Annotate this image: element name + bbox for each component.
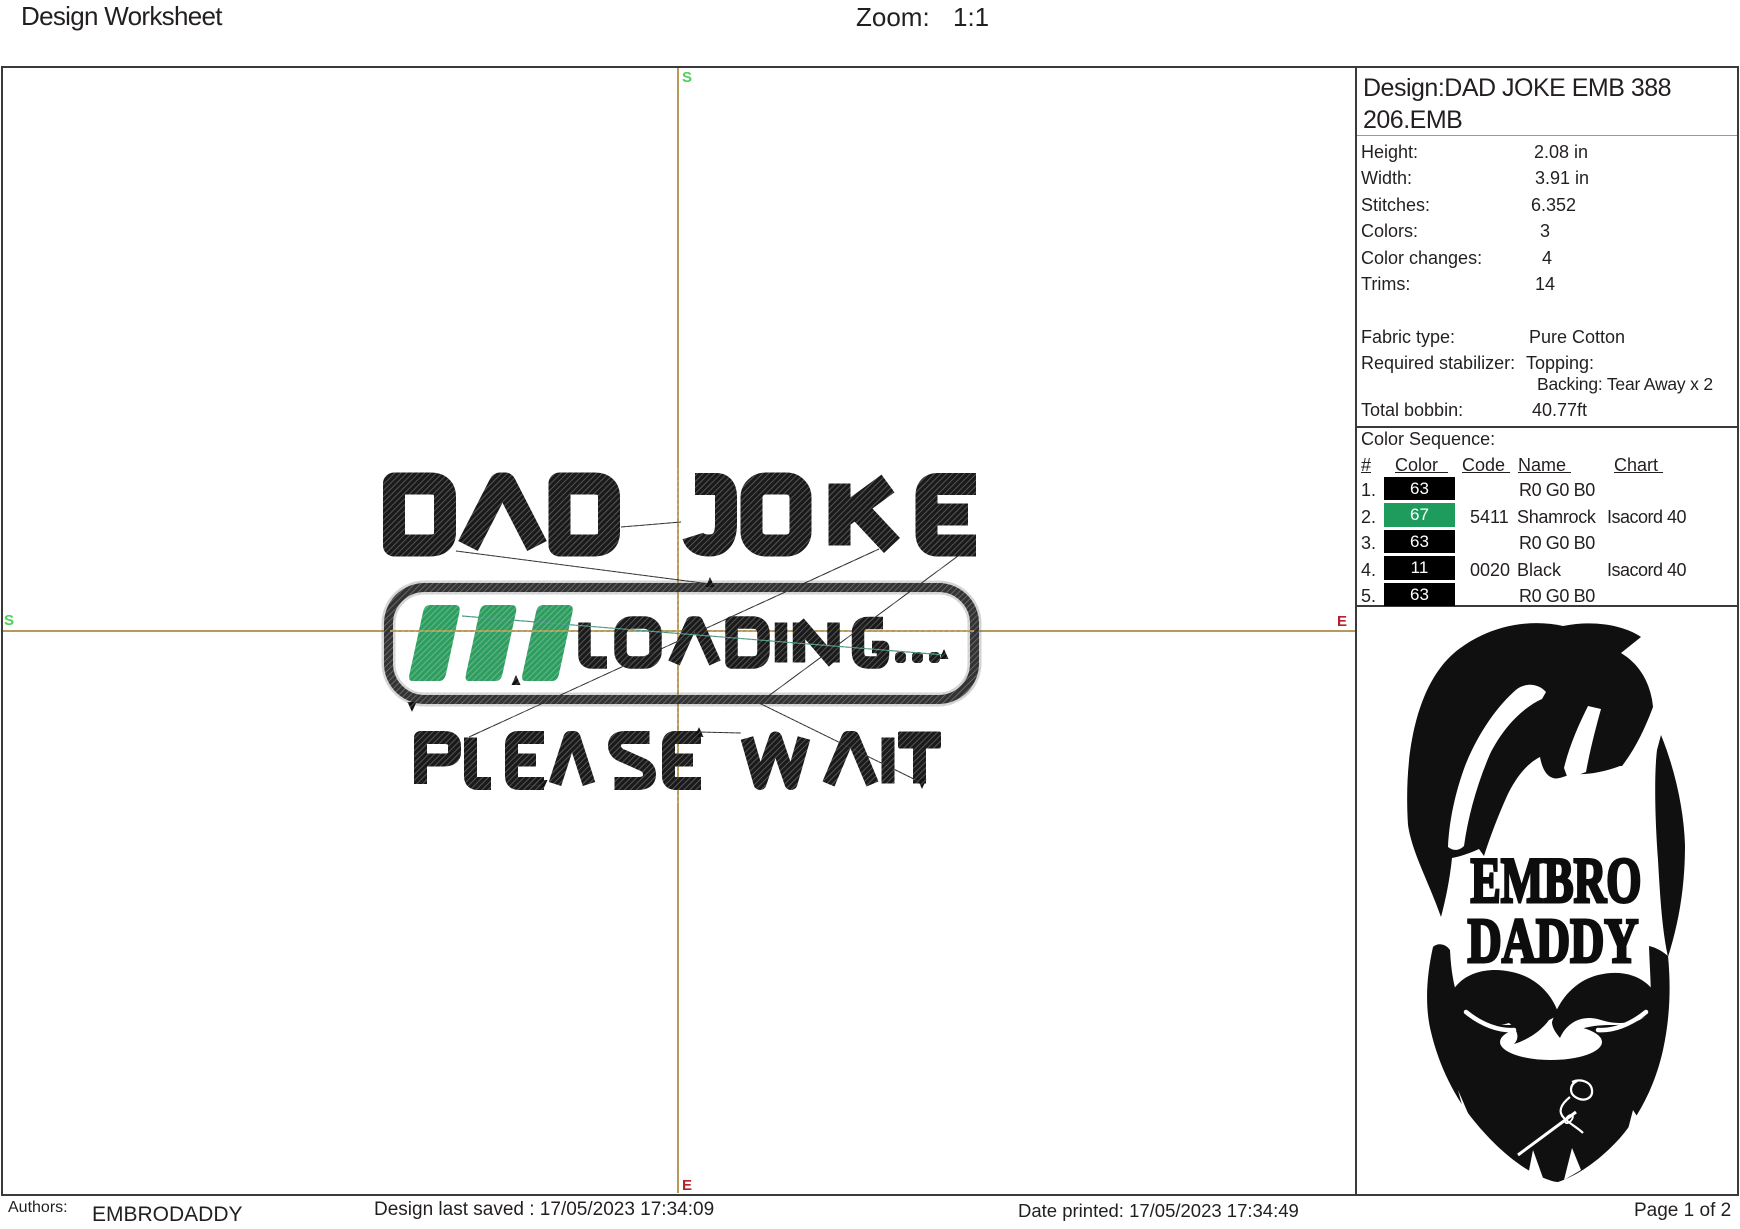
svg-text:DADDY: DADDY — [1468, 906, 1639, 976]
